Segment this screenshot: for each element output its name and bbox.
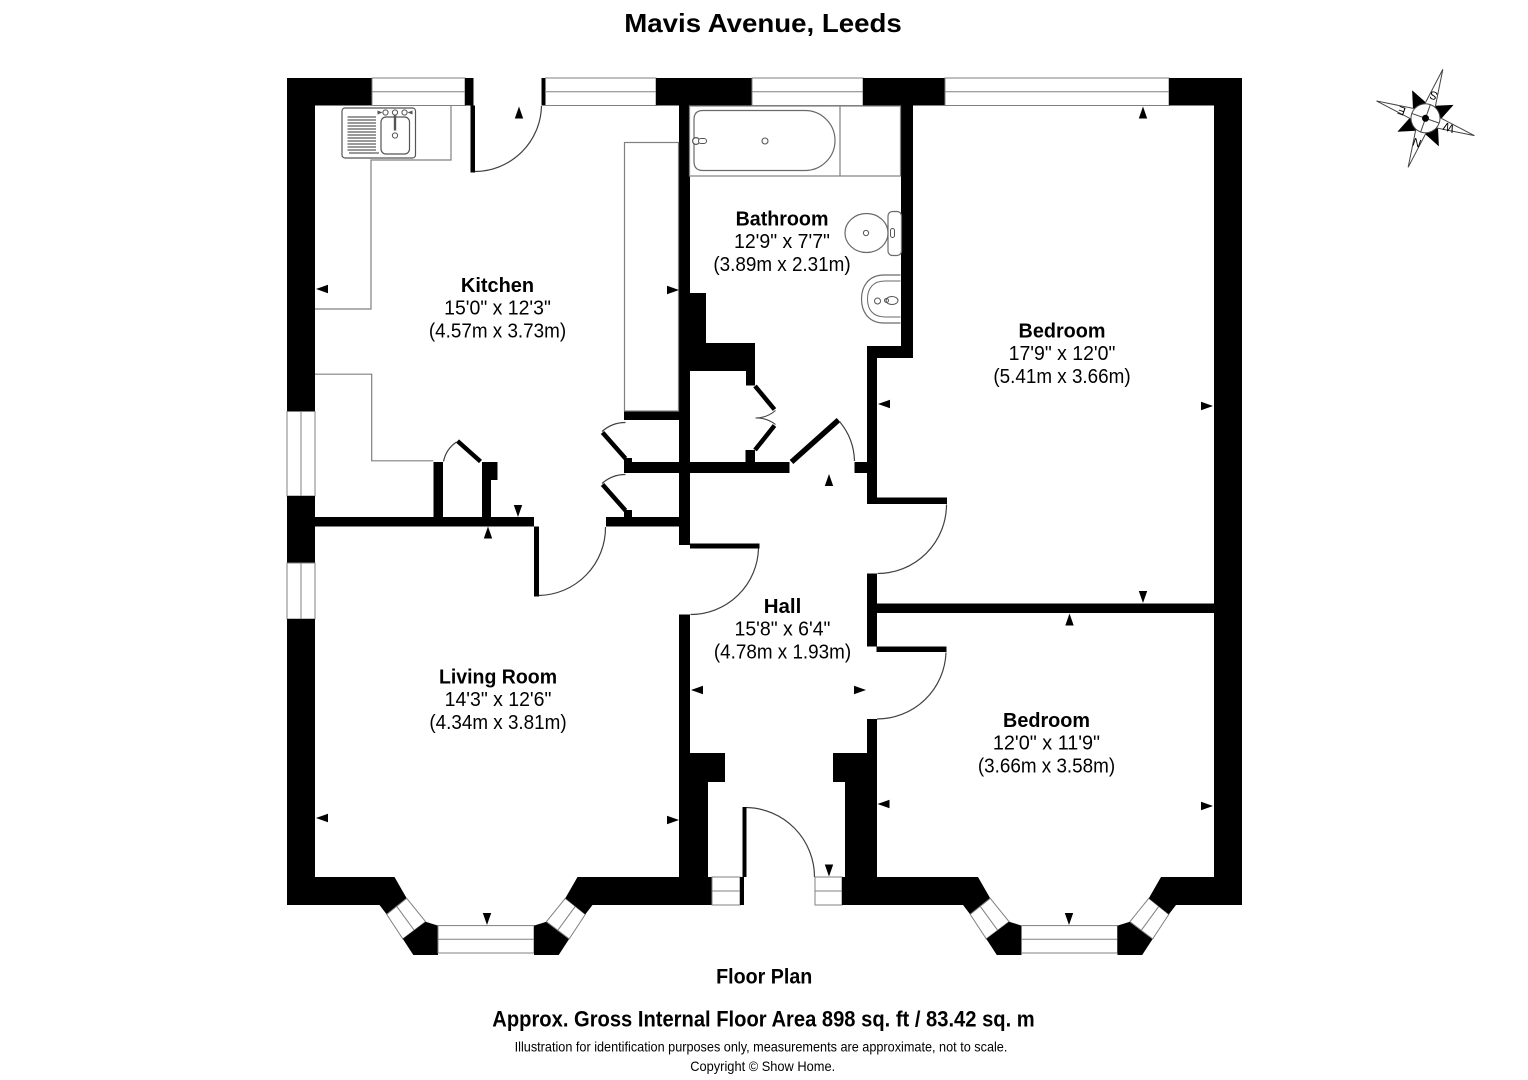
svg-text:Approx. Gross Internal Floor A: Approx. Gross Internal Floor Area 898 sq… xyxy=(492,1006,1034,1031)
svg-text:Living Room: Living Room xyxy=(439,666,557,689)
svg-text:(4.78m x 1.93m): (4.78m x 1.93m) xyxy=(714,641,851,664)
svg-text:(4.57m x 3.73m): (4.57m x 3.73m) xyxy=(429,320,566,343)
svg-text:Kitchen: Kitchen xyxy=(461,275,534,297)
svg-text:12'9" x 7'7": 12'9" x 7'7" xyxy=(734,231,830,254)
svg-text:14'3" x 12'6": 14'3" x 12'6" xyxy=(445,689,552,712)
svg-text:(3.89m x 2.31m): (3.89m x 2.31m) xyxy=(713,253,850,276)
svg-text:Mavis Avenue, Leeds: Mavis Avenue, Leeds xyxy=(624,9,901,38)
svg-text:Bedroom: Bedroom xyxy=(1003,710,1090,732)
svg-text:17'9" x 12'0": 17'9" x 12'0" xyxy=(1009,343,1116,366)
svg-text:Floor Plan: Floor Plan xyxy=(716,965,812,989)
svg-text:Illustration for identificatio: Illustration for identification purposes… xyxy=(515,1039,1008,1055)
svg-text:12'0" x 11'9": 12'0" x 11'9" xyxy=(993,732,1100,754)
svg-text:(4.34m x 3.81m): (4.34m x 3.81m) xyxy=(429,711,566,734)
svg-text:Copyright © Show Home.: Copyright © Show Home. xyxy=(690,1058,835,1074)
svg-text:Bedroom: Bedroom xyxy=(1019,320,1106,342)
svg-text:(3.66m x 3.58m): (3.66m x 3.58m) xyxy=(978,755,1115,778)
svg-text:Bathroom: Bathroom xyxy=(736,208,829,230)
svg-text:Hall: Hall xyxy=(764,595,802,618)
svg-text:15'0" x 12'3": 15'0" x 12'3" xyxy=(444,297,551,320)
svg-text:(5.41m x 3.66m): (5.41m x 3.66m) xyxy=(993,365,1130,388)
svg-text:15'8" x 6'4": 15'8" x 6'4" xyxy=(735,618,831,641)
